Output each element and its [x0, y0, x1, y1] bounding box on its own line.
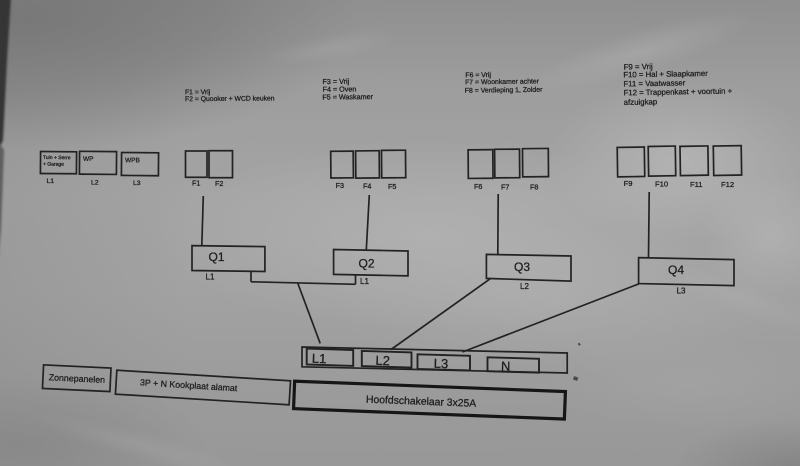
- svg-text:L3: L3: [434, 356, 449, 371]
- svg-text:Tuin + Serre: Tuin + Serre: [43, 155, 71, 161]
- svg-text:F5 = Waskamer: F5 = Waskamer: [322, 92, 373, 102]
- svg-text:+ Garage: + Garage: [43, 162, 64, 168]
- svg-text:Q1: Q1: [209, 250, 225, 264]
- svg-text:L1: L1: [47, 178, 55, 185]
- svg-text:F2: F2: [215, 179, 223, 188]
- svg-text:L2: L2: [91, 179, 99, 186]
- svg-text:L1: L1: [206, 273, 215, 282]
- svg-text:L3: L3: [133, 180, 141, 187]
- svg-text:F10: F10: [655, 179, 668, 188]
- svg-text:F8 = Verdieping 1, Zolder: F8 = Verdieping 1, Zolder: [465, 87, 543, 95]
- svg-text:WPB: WPB: [125, 157, 140, 164]
- svg-text:WP: WP: [83, 156, 94, 163]
- svg-text:F12: F12: [721, 180, 734, 189]
- svg-text:F1: F1: [192, 179, 200, 188]
- svg-text:L2: L2: [375, 353, 390, 368]
- svg-text:Q3: Q3: [514, 260, 530, 274]
- svg-text:L3: L3: [677, 286, 686, 295]
- svg-text:afzuigkap: afzuigkap: [624, 97, 658, 107]
- svg-text:F12 = Trappenkast + voortuin +: F12 = Trappenkast + voortuin +: [624, 86, 733, 97]
- svg-text:L1: L1: [312, 351, 327, 366]
- svg-text:L1: L1: [360, 277, 369, 286]
- svg-text:F6: F6: [474, 182, 482, 191]
- svg-text:F9: F9: [624, 179, 633, 188]
- svg-text:F7: F7: [501, 182, 509, 191]
- svg-text:Q4: Q4: [668, 263, 684, 277]
- svg-text:N: N: [501, 359, 511, 374]
- svg-text:F7 = Woonkamer achter: F7 = Woonkamer achter: [465, 78, 540, 86]
- svg-text:F8: F8: [530, 182, 538, 191]
- svg-text:F11: F11: [690, 180, 703, 189]
- svg-text:Q2: Q2: [359, 257, 375, 271]
- svg-text:F2 = Quooker + WCD keuken: F2 = Quooker + WCD keuken: [185, 95, 275, 103]
- svg-text:F5: F5: [388, 182, 396, 191]
- svg-text:F4: F4: [363, 181, 371, 190]
- svg-text:L2: L2: [520, 282, 529, 291]
- svg-text:F3: F3: [336, 181, 344, 190]
